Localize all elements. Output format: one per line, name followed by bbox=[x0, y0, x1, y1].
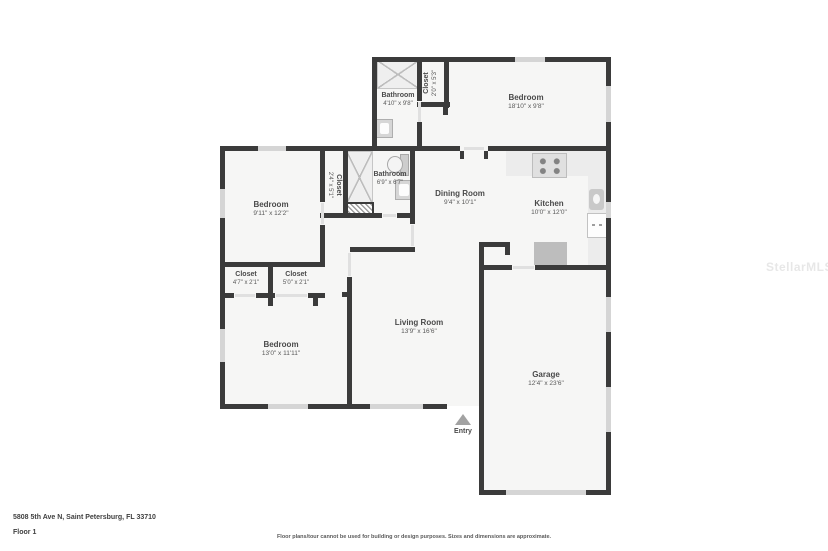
wall bbox=[488, 146, 611, 151]
room-label-bathroom-top: Bathroom 4'10" x 9'8" bbox=[368, 92, 428, 108]
dishwasher-icon bbox=[587, 213, 607, 238]
wall bbox=[220, 146, 460, 151]
room-label-bathroom-mid: Bathroom 6'9" x 6'7" bbox=[360, 171, 420, 187]
window bbox=[220, 329, 225, 362]
wall bbox=[347, 277, 352, 409]
window bbox=[606, 297, 611, 332]
room-label-closet-mid: Closet 2'4" x 5'1" bbox=[324, 157, 342, 213]
wall bbox=[342, 292, 347, 297]
room-label-closet-top: Closet 2'0" x 5'3" bbox=[423, 55, 441, 111]
kitchen-sink-icon bbox=[589, 189, 604, 210]
door-jamb bbox=[460, 151, 464, 159]
room-label-living: Living Room 13'9" x 16'6" bbox=[379, 318, 459, 336]
door-line bbox=[411, 225, 414, 246]
window bbox=[370, 404, 423, 409]
disclaimer-text: Floor plans/tour cannot be used for buil… bbox=[0, 534, 828, 540]
wall bbox=[320, 225, 325, 267]
entry-arrow-icon bbox=[455, 414, 471, 425]
room-label-garage: Garage 12'4" x 23'6" bbox=[506, 370, 586, 388]
window bbox=[606, 202, 611, 218]
wall bbox=[313, 293, 318, 306]
stove-icon bbox=[532, 153, 567, 178]
wall bbox=[444, 57, 449, 108]
door-jamb bbox=[484, 151, 488, 159]
wall bbox=[443, 102, 448, 115]
door-line bbox=[348, 253, 351, 276]
window bbox=[258, 146, 286, 151]
room-label-dining: Dining Room 9'4" x 10'1" bbox=[420, 189, 500, 207]
property-address: 5808 5th Ave N, Saint Petersburg, FL 337… bbox=[13, 514, 156, 521]
window bbox=[515, 57, 545, 62]
wall bbox=[268, 293, 273, 306]
shower-icon bbox=[377, 60, 419, 89]
wall bbox=[372, 57, 611, 62]
window bbox=[268, 404, 308, 409]
wall bbox=[535, 265, 611, 270]
entry-label: Entry bbox=[438, 428, 488, 435]
door-line bbox=[513, 266, 534, 269]
door-line bbox=[235, 294, 255, 297]
room-label-closet-a: Closet 4'7" x 2'1" bbox=[221, 271, 271, 287]
door-line bbox=[383, 214, 396, 217]
floorplan-image: Bathroom 4'10" x 9'8" Closet 2'0" x 5'3"… bbox=[0, 0, 828, 551]
wall bbox=[479, 265, 512, 270]
window bbox=[606, 86, 611, 122]
room-label-bedroom-mid: Bedroom 9'11" x 12'2" bbox=[231, 200, 311, 218]
room-label-bedroom-top: Bedroom 18'10" x 9'8" bbox=[486, 93, 566, 111]
wall bbox=[350, 247, 415, 252]
door-line bbox=[276, 294, 307, 297]
room-label-kitchen: Kitchen 10'0" x 12'0" bbox=[509, 199, 589, 217]
stellar-mls-watermark: StellarMLS bbox=[766, 260, 828, 274]
room-label-bedroom-bottom: Bedroom 13'0" x 11'11" bbox=[241, 340, 321, 358]
wall bbox=[505, 242, 510, 255]
door-line bbox=[464, 147, 484, 150]
refrigerator-icon bbox=[534, 242, 567, 265]
floor-garage bbox=[481, 244, 608, 492]
window bbox=[220, 189, 225, 218]
wall bbox=[320, 213, 382, 218]
wall bbox=[343, 146, 348, 218]
wall bbox=[417, 122, 422, 151]
wall bbox=[479, 242, 484, 495]
room-label-closet-b: Closet 5'0" x 2'1" bbox=[271, 271, 321, 287]
window bbox=[606, 387, 611, 432]
garage-door bbox=[506, 490, 586, 495]
wall bbox=[222, 293, 234, 298]
sink-icon bbox=[376, 119, 393, 138]
